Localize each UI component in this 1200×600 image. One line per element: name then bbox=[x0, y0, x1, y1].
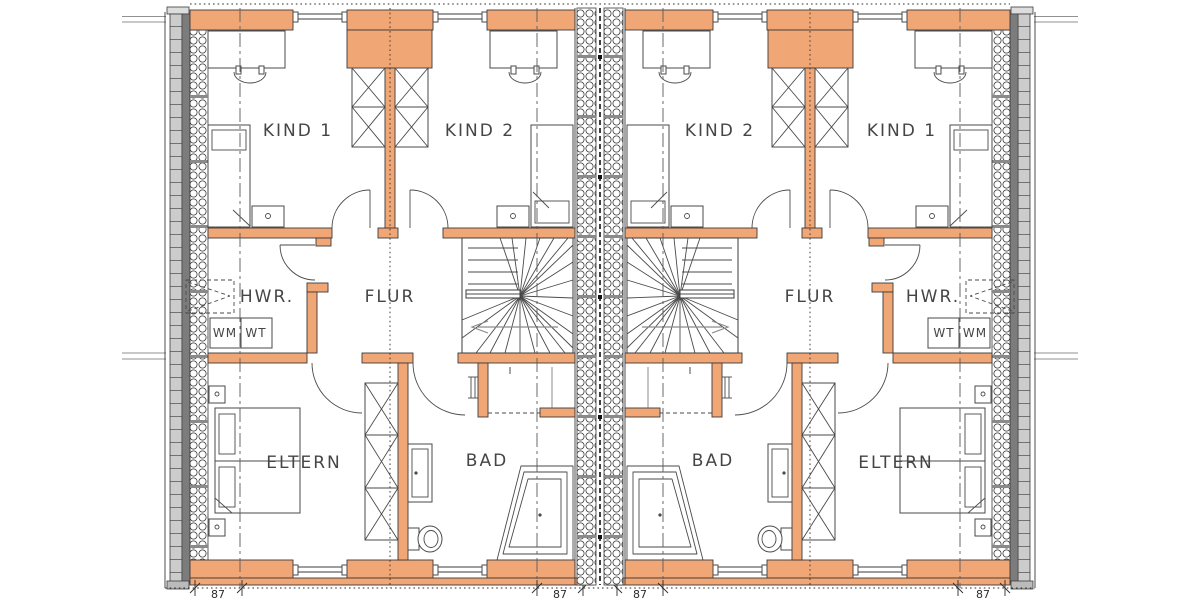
dimension-label-left-inner: 87 bbox=[553, 588, 567, 600]
room-label-kind2-right: KIND 2 bbox=[685, 121, 755, 141]
room-label-flur-left: FLUR bbox=[365, 287, 416, 307]
appliance-label-wt-right: WT bbox=[933, 326, 954, 340]
room-label-eltern-left: ELTERN bbox=[266, 453, 342, 473]
floor-plan: KIND 1 KIND 2 KIND 2 KIND 1 HWR. FLUR FL… bbox=[0, 0, 1200, 600]
room-label-kind1-left: KIND 1 bbox=[263, 121, 333, 141]
party-wall bbox=[575, 8, 625, 585]
room-label-hwr-left: HWR. bbox=[240, 287, 294, 307]
appliance-label-wm-right: WM bbox=[963, 326, 987, 340]
room-label-eltern-right: ELTERN bbox=[858, 453, 934, 473]
floor-plan-drawing: KIND 1 KIND 2 KIND 2 KIND 1 HWR. FLUR FL… bbox=[0, 0, 1200, 600]
room-label-hwr-right: HWR. bbox=[906, 287, 960, 307]
room-label-bad-right: BAD bbox=[692, 451, 734, 471]
room-label-flur-right: FLUR bbox=[785, 287, 836, 307]
unit-right bbox=[607, 7, 1078, 596]
appliance-label-wm-left: WM bbox=[213, 326, 237, 340]
room-label-kind1-right: KIND 1 bbox=[867, 121, 937, 141]
appliance-label-wt-left: WT bbox=[245, 326, 266, 340]
room-label-kind2-left: KIND 2 bbox=[445, 121, 515, 141]
dimension-label-left-outer: 87 bbox=[211, 588, 225, 600]
dimension-label-right-outer: 87 bbox=[976, 588, 990, 600]
dimension-label-right-inner: 87 bbox=[633, 588, 647, 600]
unit-left bbox=[122, 7, 593, 596]
room-label-bad-left: BAD bbox=[466, 451, 508, 471]
